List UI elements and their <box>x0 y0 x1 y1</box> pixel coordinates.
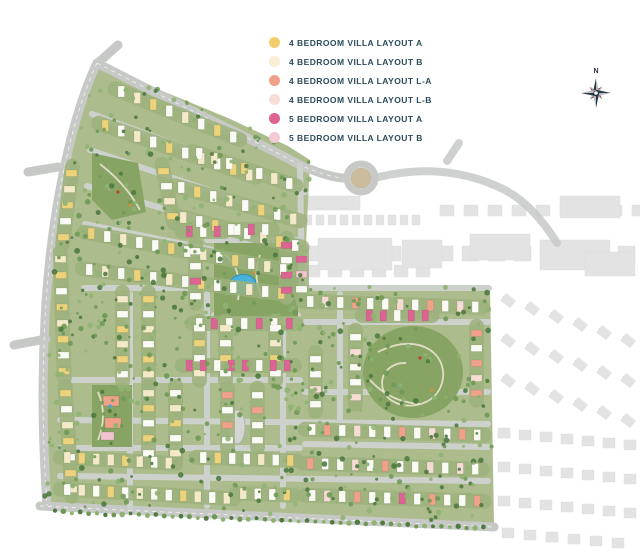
legend-item-label: 5 BEDROOM VILLA LAYOUT B <box>289 133 423 143</box>
legend-item-label: 4 BEDROOM VILLA LAYOUT B <box>289 57 423 67</box>
legend-color-dot <box>269 113 280 124</box>
legend-item-6: 5 BEDROOM VILLA LAYOUT B <box>269 132 432 143</box>
legend-item-5: 5 BEDROOM VILLA LAYOUT A <box>269 113 432 124</box>
legend-color-dot <box>269 75 280 86</box>
master-plan-page: 4 BEDROOM VILLA LAYOUT A4 BEDROOM VILLA … <box>0 0 640 558</box>
legend-item-3: 4 BEDROOM VILLA LAYOUT L-A <box>269 75 432 86</box>
legend-item-label: 4 BEDROOM VILLA LAYOUT L-B <box>289 95 432 105</box>
compass: N <box>577 68 615 115</box>
legend-color-dot <box>269 37 280 48</box>
legend-item-label: 5 BEDROOM VILLA LAYOUT A <box>289 114 423 124</box>
legend-item-label: 4 BEDROOM VILLA LAYOUT A <box>289 38 423 48</box>
legend-item-1: 4 BEDROOM VILLA LAYOUT A <box>269 37 432 48</box>
compass-north-label: N <box>577 68 615 76</box>
legend-item-label: 4 BEDROOM VILLA LAYOUT L-A <box>289 76 432 86</box>
compass-rose-icon <box>579 76 613 110</box>
legend-item-2: 4 BEDROOM VILLA LAYOUT B <box>269 56 432 67</box>
legend-item-4: 4 BEDROOM VILLA LAYOUT L-B <box>269 94 432 105</box>
legend-color-dot <box>269 56 280 67</box>
legend: 4 BEDROOM VILLA LAYOUT A4 BEDROOM VILLA … <box>269 37 432 143</box>
legend-color-dot <box>269 132 280 143</box>
legend-color-dot <box>269 94 280 105</box>
